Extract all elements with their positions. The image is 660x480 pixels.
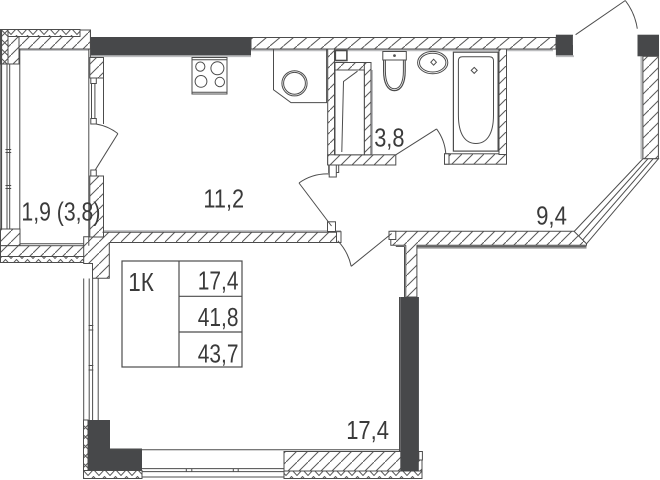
svg-text:17,4: 17,4 [198,268,239,296]
svg-text:1,9 (3,8): 1,9 (3,8) [21,199,100,227]
svg-text:3,8: 3,8 [374,125,404,153]
svg-text:9,4: 9,4 [536,203,567,231]
svg-text:1К: 1К [128,269,154,297]
svg-text:17,4: 17,4 [346,417,389,445]
svg-text:11,2: 11,2 [203,185,244,213]
svg-text:43,7: 43,7 [198,341,239,369]
svg-text:41,8: 41,8 [198,304,239,332]
